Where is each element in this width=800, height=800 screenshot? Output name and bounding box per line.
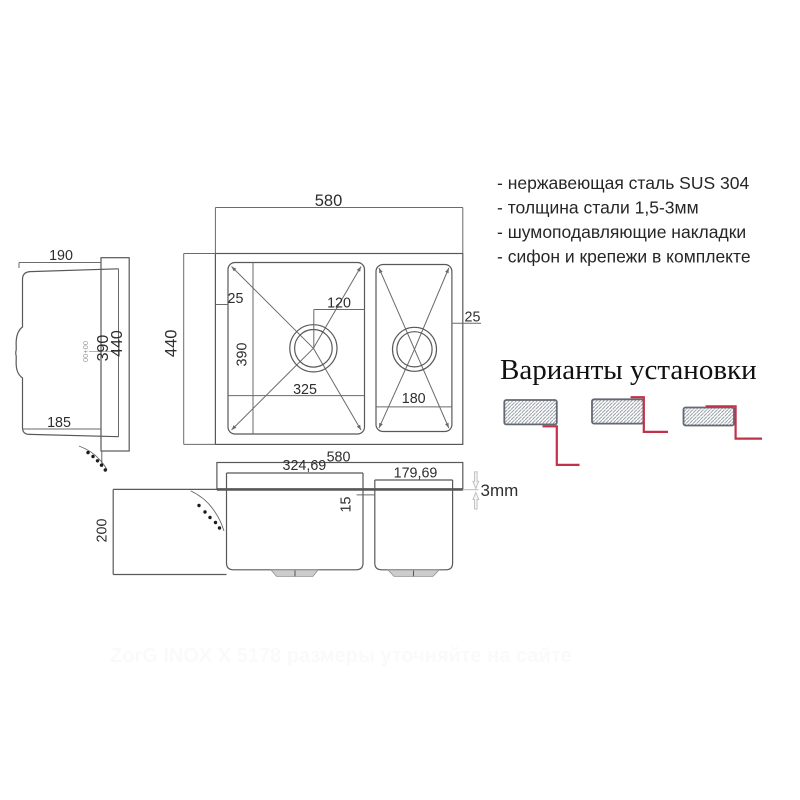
svg-text:25: 25 (228, 291, 244, 307)
svg-text:190: 190 (49, 248, 73, 264)
svg-text:- сифон и крепежи в комплекте: - сифон и крепежи в комплекте (497, 246, 751, 266)
svg-text:120: 120 (327, 296, 351, 312)
svg-text:15: 15 (339, 497, 355, 513)
svg-text:440: 440 (109, 330, 126, 357)
svg-text:200: 200 (95, 519, 111, 543)
svg-text:325: 325 (293, 382, 317, 398)
svg-text:179,69: 179,69 (394, 466, 438, 482)
svg-text:- толщина стали 1,5-3мм: - толщина стали 1,5-3мм (497, 198, 699, 218)
svg-text:440: 440 (163, 330, 181, 358)
svg-text:390: 390 (235, 343, 251, 367)
svg-text:3mm: 3mm (481, 481, 519, 500)
svg-text:324,69: 324,69 (283, 458, 327, 474)
svg-text:185: 185 (47, 415, 71, 431)
svg-text:Варианты установки: Варианты установки (500, 354, 757, 386)
svg-text:25: 25 (465, 310, 481, 326)
svg-text:580: 580 (327, 450, 351, 466)
svg-text:580: 580 (315, 192, 343, 210)
svg-text:- нержавеющая сталь SUS 304: - нержавеющая сталь SUS 304 (497, 173, 749, 193)
svg-text:00+00: 00+00 (81, 341, 90, 362)
svg-text:- шумоподавляющие накладки: - шумоподавляющие накладки (497, 222, 746, 242)
svg-text:180: 180 (402, 391, 426, 407)
svg-text:ZorG INOX X 5178 размеры уточн: ZorG INOX X 5178 размеры уточняйте на са… (110, 645, 572, 667)
